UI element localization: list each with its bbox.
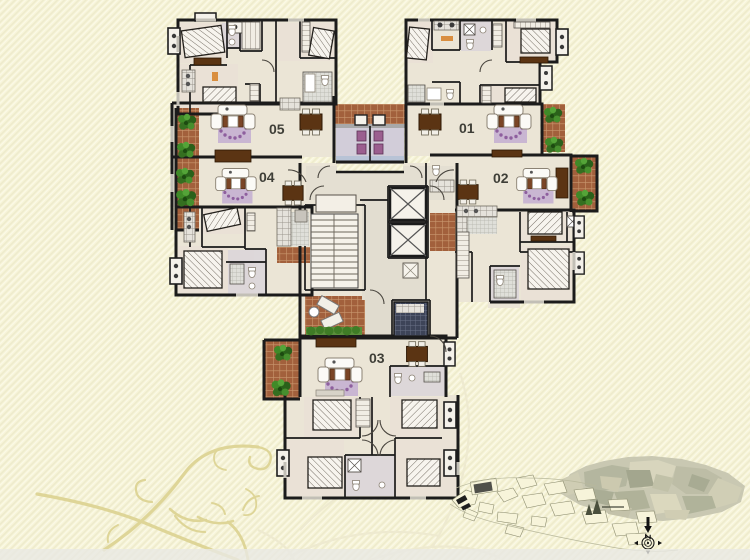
svg-text:04: 04: [259, 169, 275, 185]
svg-text:05: 05: [269, 121, 285, 137]
svg-text:01: 01: [459, 120, 475, 136]
svg-text:02: 02: [493, 170, 509, 186]
svg-text:03: 03: [369, 350, 385, 366]
